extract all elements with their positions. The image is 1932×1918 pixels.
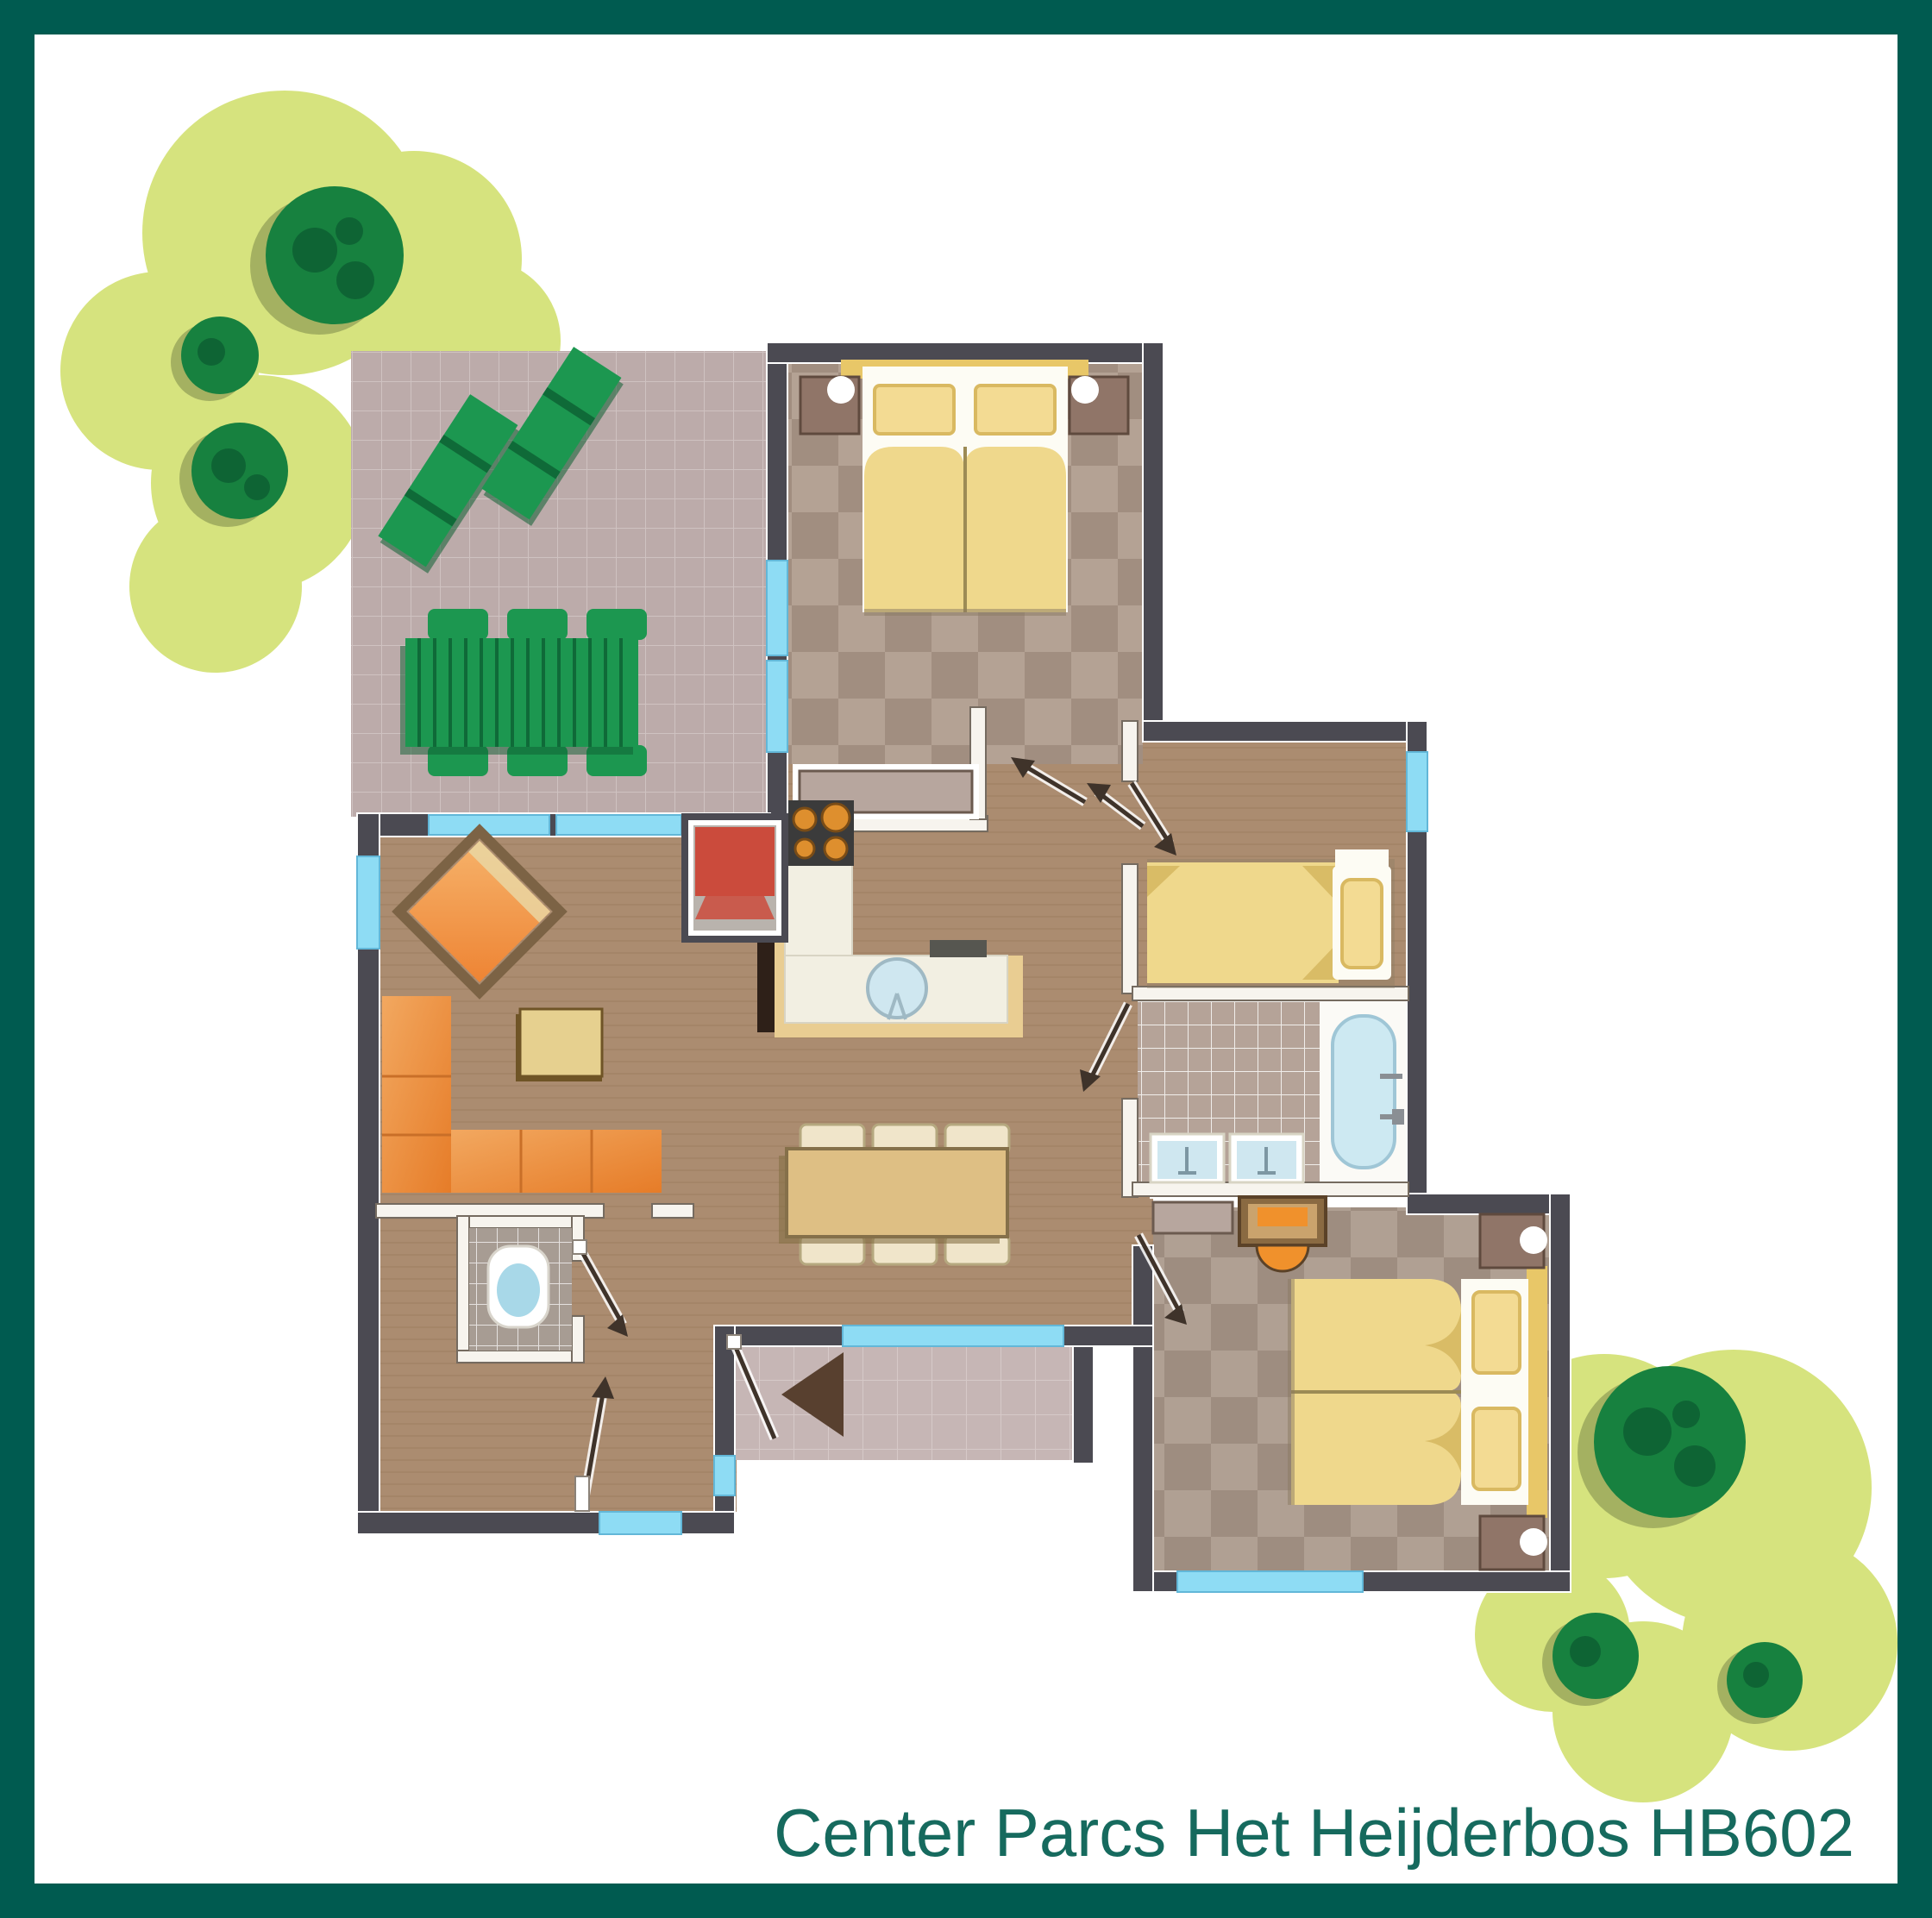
floorplan-image: Center Parcs Het Heijderbos HB602 — [0, 0, 1932, 1918]
pillow — [1473, 1292, 1520, 1373]
fridge — [757, 943, 775, 1032]
bed-headboard — [1527, 1266, 1547, 1518]
bed-shadow — [864, 609, 1066, 616]
dining-area — [779, 1125, 1009, 1264]
sideboard — [1153, 1202, 1233, 1233]
window — [1407, 752, 1427, 831]
wall — [652, 1204, 693, 1218]
dining-table — [787, 1149, 1007, 1237]
floorplan-svg: Center Parcs Het Heijderbos HB602 — [0, 0, 1932, 1918]
wall — [1132, 1182, 1408, 1196]
lamp-icon — [1071, 376, 1099, 404]
coffee-table — [520, 1009, 602, 1076]
pillow — [1473, 1408, 1520, 1489]
pillow — [975, 385, 1055, 434]
window — [599, 1512, 681, 1534]
window — [1177, 1571, 1363, 1592]
toilet-wall — [572, 1316, 584, 1363]
wall — [1122, 721, 1138, 781]
tub-faucet-icon — [1392, 1109, 1404, 1125]
porch-floor — [735, 1339, 1073, 1460]
door-hinge — [575, 1476, 589, 1511]
toilet-bowl — [497, 1263, 540, 1317]
washbasin-icon — [1230, 1134, 1303, 1182]
sink-icon — [868, 959, 926, 1018]
window — [767, 561, 787, 655]
pillow — [875, 385, 954, 434]
window — [429, 815, 549, 835]
wall — [1073, 1346, 1094, 1464]
burner-icon — [825, 837, 847, 860]
lamp-icon — [1520, 1226, 1547, 1254]
wall — [1550, 1194, 1571, 1592]
door-hinge — [727, 1335, 741, 1349]
window — [714, 1456, 735, 1495]
toilet-wall — [457, 1351, 584, 1363]
garden-table-icon — [400, 638, 638, 755]
burner-icon — [795, 839, 814, 858]
wall — [1407, 1194, 1571, 1214]
burner-icon — [822, 804, 850, 831]
bedroom-middle — [1147, 849, 1395, 988]
pillow — [1342, 880, 1382, 968]
single-bed-duvet — [1147, 862, 1339, 983]
corner-sofa — [451, 1130, 662, 1193]
counter-base — [1007, 956, 1023, 1037]
wall — [1132, 1245, 1153, 1592]
wall — [1143, 721, 1427, 742]
window — [767, 661, 787, 752]
counter-base — [775, 1022, 1023, 1037]
fireplace-chair — [695, 827, 775, 896]
kitchen-counter — [785, 864, 852, 957]
kitchen-appliance — [930, 940, 987, 957]
bed-shadow — [1288, 1279, 1295, 1505]
toilet-room — [488, 1246, 549, 1327]
toilet-wall — [457, 1216, 469, 1363]
caption-text: Center Parcs Het Heijderbos HB602 — [774, 1795, 1854, 1871]
fireplace-nook — [681, 813, 788, 943]
wall — [1132, 987, 1408, 1000]
toilet-wall — [457, 1216, 584, 1228]
window — [556, 815, 681, 835]
washbasin-icon — [1151, 1134, 1224, 1182]
bathtub — [1333, 1016, 1395, 1168]
wall — [1143, 342, 1164, 742]
burner-icon — [793, 808, 816, 831]
fireplace-chair — [695, 896, 775, 919]
lamp-icon — [827, 376, 855, 404]
lamp-icon — [1520, 1528, 1547, 1556]
corner-sofa — [382, 996, 451, 1193]
door-hinge — [573, 1240, 586, 1254]
sliding-door-window — [843, 1326, 1063, 1346]
window — [357, 856, 379, 949]
wall — [1122, 864, 1138, 993]
